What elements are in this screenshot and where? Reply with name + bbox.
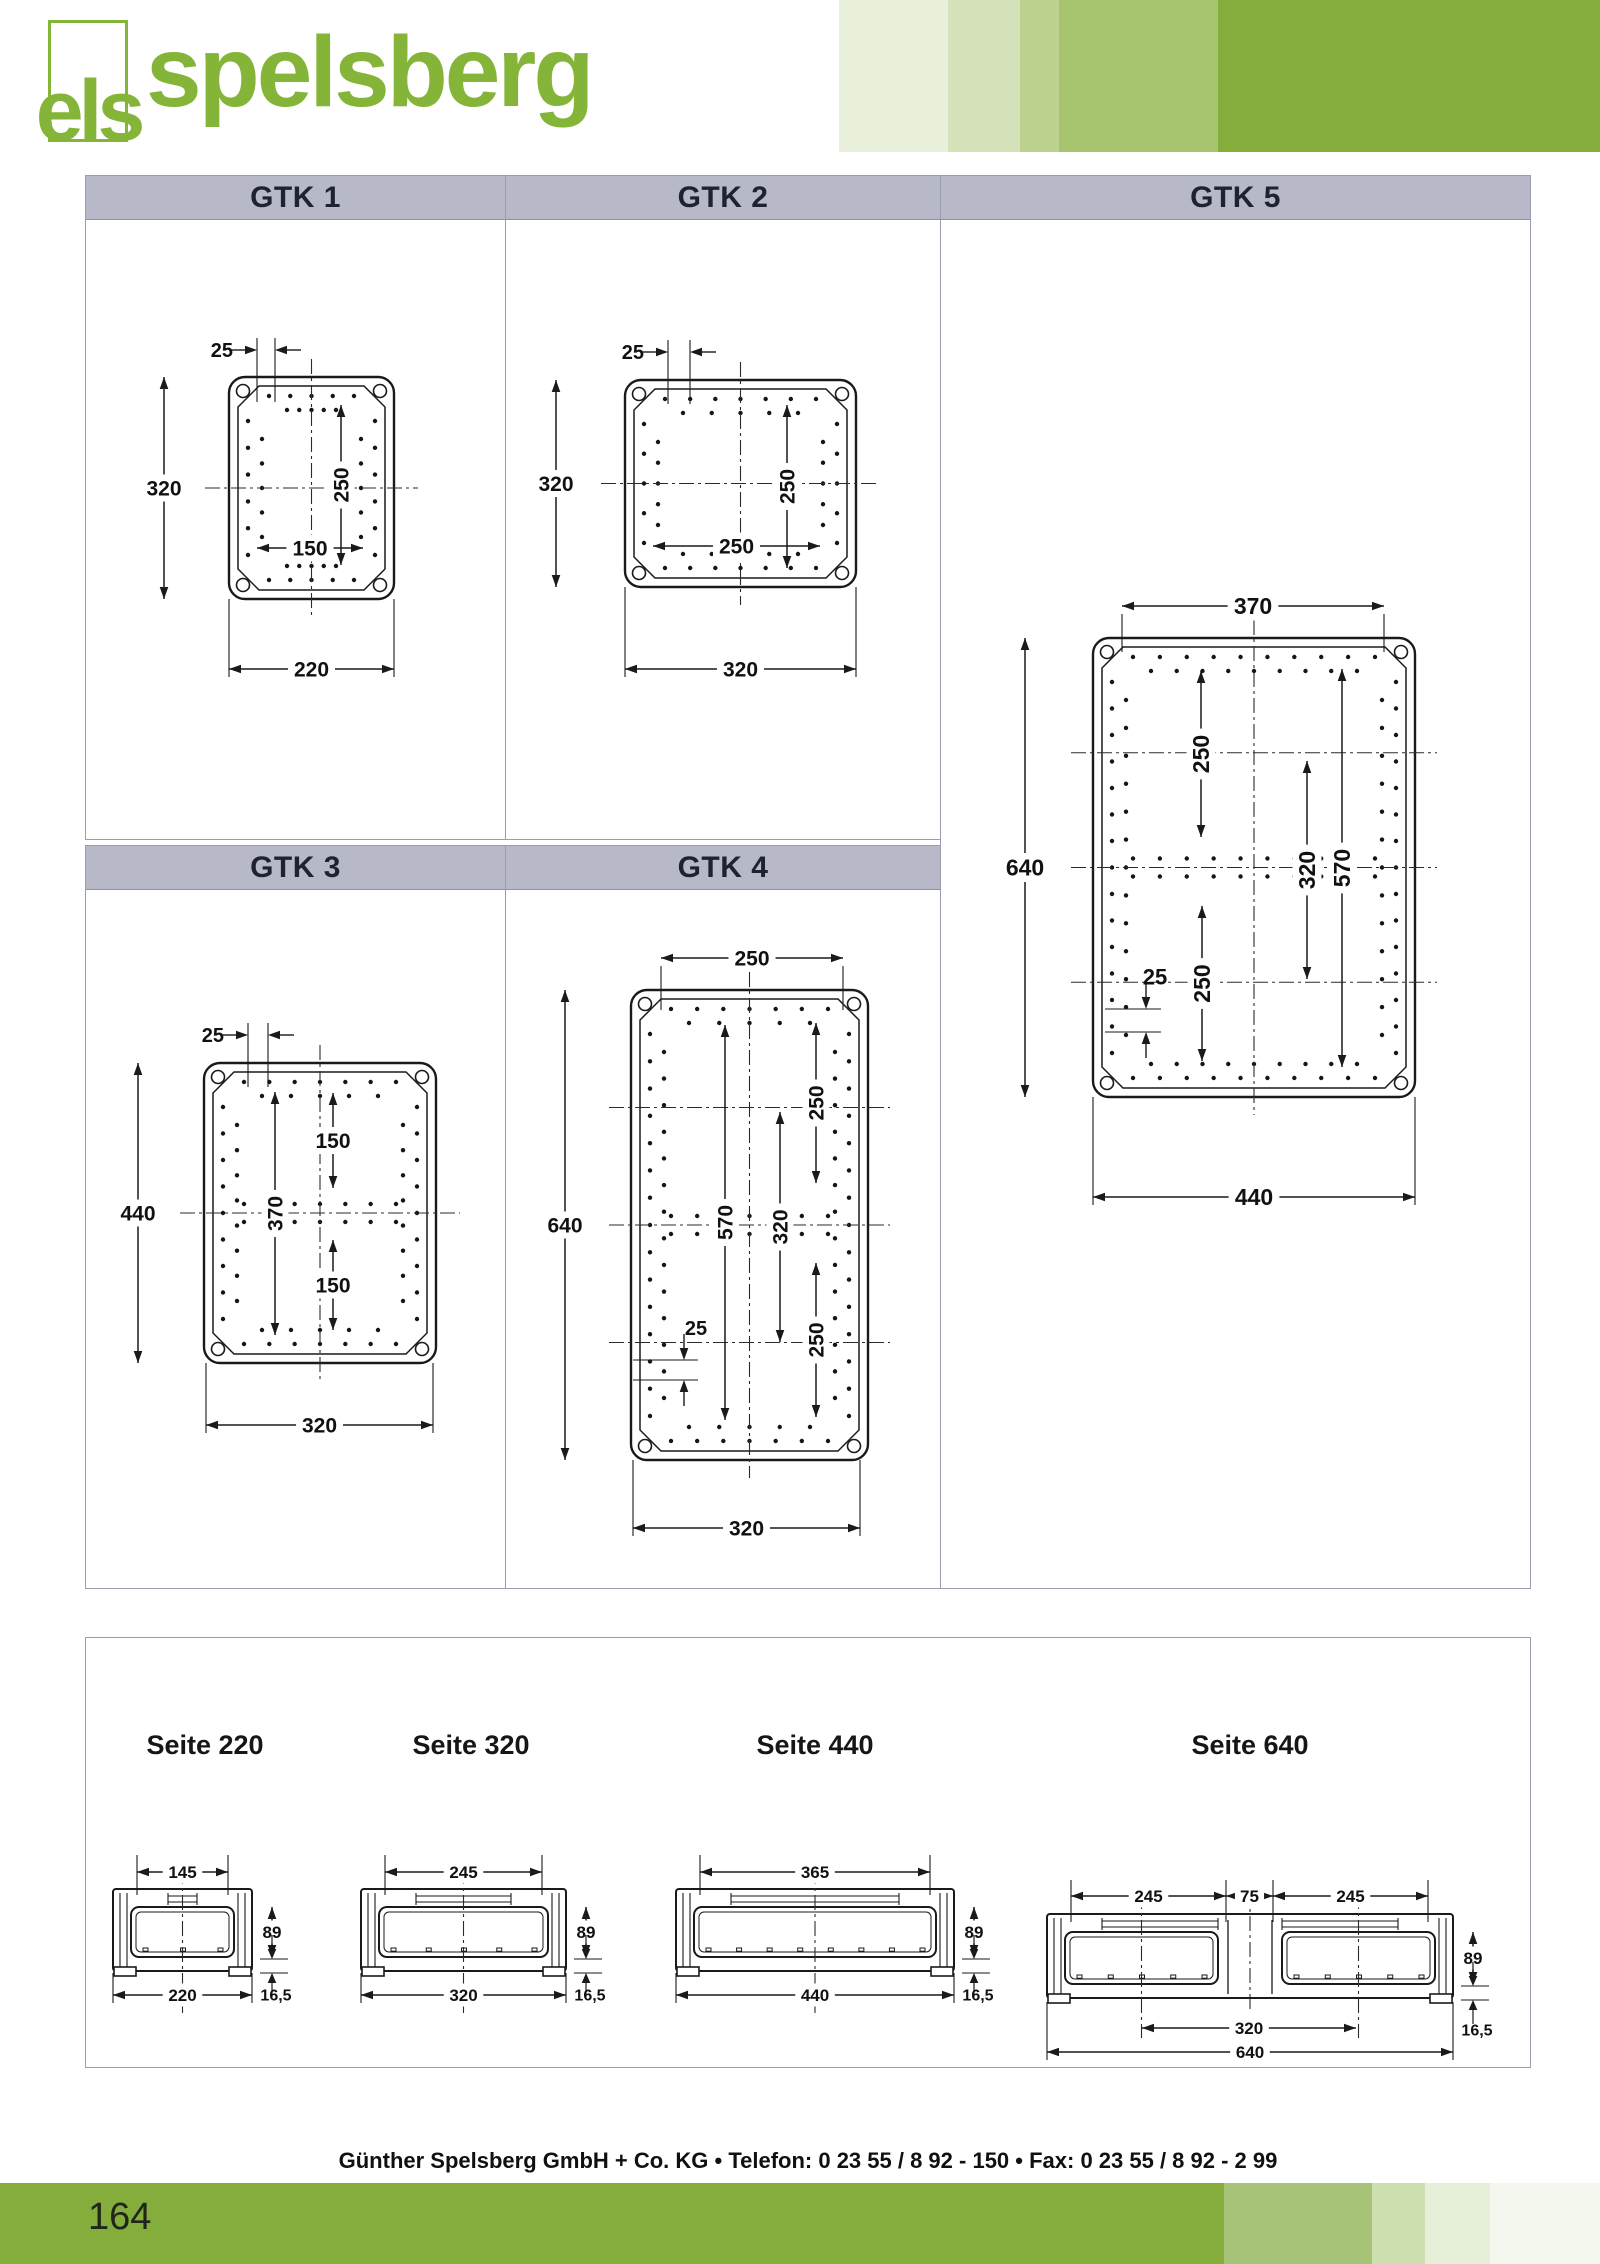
seite-320-title: Seite 320 xyxy=(412,1730,529,1761)
svg-text:220: 220 xyxy=(294,658,329,681)
svg-text:16,5: 16,5 xyxy=(574,1988,605,2005)
svg-text:150: 150 xyxy=(292,537,327,560)
footer-green-tint xyxy=(1224,2183,1372,2264)
svg-text:245: 245 xyxy=(1134,1887,1162,1906)
panel-header-gtk1: GTK 1 xyxy=(86,176,505,220)
panel-header-gtk4: GTK 4 xyxy=(506,846,940,890)
svg-text:440: 440 xyxy=(1235,1184,1273,1210)
footer-green-main xyxy=(0,2183,1224,2264)
gtk3-technical-drawing: 25440370150150320 xyxy=(86,890,505,1589)
svg-text:16,5: 16,5 xyxy=(260,1988,291,2005)
svg-text:640: 640 xyxy=(1006,855,1044,881)
svg-text:570: 570 xyxy=(714,1205,737,1240)
svg-text:320: 320 xyxy=(1235,2019,1263,2038)
svg-text:440: 440 xyxy=(120,1202,155,1225)
svg-text:570: 570 xyxy=(1329,849,1355,887)
svg-text:250: 250 xyxy=(1188,735,1214,773)
svg-text:640: 640 xyxy=(1236,2043,1264,2062)
svg-text:25: 25 xyxy=(211,340,233,362)
seite-440-title: Seite 440 xyxy=(756,1730,873,1761)
footer-company-line: Günther Spelsberg GmbH + Co. KG • Telefo… xyxy=(85,2148,1531,2174)
page-number: 164 xyxy=(88,2196,151,2239)
svg-text:365: 365 xyxy=(801,1863,829,1882)
footer-green-bar xyxy=(0,2183,1600,2264)
seite-220-title: Seite 220 xyxy=(146,1730,263,1761)
svg-text:320: 320 xyxy=(729,1517,764,1540)
panel-gtk3: GTK 3 25440370150150320 xyxy=(85,845,506,1589)
green-accent-block xyxy=(1059,0,1218,152)
svg-text:250: 250 xyxy=(776,469,799,504)
svg-text:150: 150 xyxy=(315,1130,350,1153)
catalog-page: els spelsberg GTK 1 25320250150220 GTK 2… xyxy=(0,0,1600,2264)
svg-text:320: 320 xyxy=(449,1986,477,2005)
panel-header-gtk5: GTK 5 xyxy=(941,176,1530,220)
svg-text:320: 320 xyxy=(538,473,573,496)
panel-gtk2: GTK 2 25320250250320 xyxy=(505,175,941,840)
svg-text:25: 25 xyxy=(622,342,644,364)
footer-green-tint xyxy=(1490,2183,1600,2264)
footer-green-tint xyxy=(1372,2183,1425,2264)
svg-text:370: 370 xyxy=(264,1196,287,1231)
seite-side-view-drawings: 1458922016,52458932016,53658944016,52457… xyxy=(86,1638,1530,2067)
panel-header-gtk2: GTK 2 xyxy=(506,176,940,220)
svg-text:250: 250 xyxy=(805,1322,828,1357)
svg-text:245: 245 xyxy=(449,1863,477,1882)
panel-title: GTK 5 xyxy=(1190,181,1281,215)
gtk5-technical-drawing: 37064025032057025250440 xyxy=(941,220,1530,1590)
panel-title: GTK 2 xyxy=(678,181,769,215)
seite-section: Seite 220 Seite 320 Seite 440 Seite 640 … xyxy=(85,1637,1531,2068)
panel-gtk4: GTK 4 25064025057032025250320 xyxy=(505,845,941,1589)
panel-title: GTK 1 xyxy=(250,181,341,215)
footer-green-tint xyxy=(1425,2183,1490,2264)
panel-title: GTK 3 xyxy=(250,851,341,885)
green-accent-block xyxy=(948,0,1020,152)
svg-text:220: 220 xyxy=(168,1986,196,2005)
svg-text:16,5: 16,5 xyxy=(1461,2023,1492,2040)
svg-text:370: 370 xyxy=(1234,593,1272,619)
header-green-strip xyxy=(0,0,1600,152)
svg-text:320: 320 xyxy=(723,658,758,681)
gtk2-technical-drawing: 25320250250320 xyxy=(506,220,940,841)
panel-gtk1: GTK 1 25320250150220 xyxy=(85,175,506,840)
svg-text:250: 250 xyxy=(734,947,769,970)
panel-title: GTK 4 xyxy=(678,851,769,885)
svg-text:25: 25 xyxy=(1143,965,1167,990)
green-accent-block xyxy=(1020,0,1059,152)
green-accent-block xyxy=(839,0,948,152)
svg-text:250: 250 xyxy=(805,1085,828,1120)
svg-text:320: 320 xyxy=(1294,851,1320,889)
svg-text:250: 250 xyxy=(719,535,754,558)
svg-text:150: 150 xyxy=(315,1274,350,1297)
svg-text:250: 250 xyxy=(330,467,353,502)
svg-text:320: 320 xyxy=(769,1209,792,1244)
seite-640-title: Seite 640 xyxy=(1191,1730,1308,1761)
svg-text:25: 25 xyxy=(202,1025,224,1047)
gtk1-technical-drawing: 25320250150220 xyxy=(86,220,505,841)
gtk4-technical-drawing: 25064025057032025250320 xyxy=(506,890,940,1589)
svg-text:16,5: 16,5 xyxy=(962,1988,993,2005)
svg-text:640: 640 xyxy=(547,1214,582,1237)
svg-text:245: 245 xyxy=(1336,1887,1364,1906)
svg-text:320: 320 xyxy=(146,477,181,500)
svg-text:25: 25 xyxy=(685,1318,707,1340)
panel-gtk5: GTK 5 37064025032057025250440 xyxy=(940,175,1531,1589)
svg-text:320: 320 xyxy=(302,1414,337,1437)
svg-text:145: 145 xyxy=(168,1863,196,1882)
svg-text:75: 75 xyxy=(1240,1887,1259,1906)
panel-header-gtk3: GTK 3 xyxy=(86,846,505,890)
svg-text:250: 250 xyxy=(1189,964,1215,1002)
svg-text:440: 440 xyxy=(801,1986,829,2005)
green-accent-block xyxy=(1218,0,1600,152)
